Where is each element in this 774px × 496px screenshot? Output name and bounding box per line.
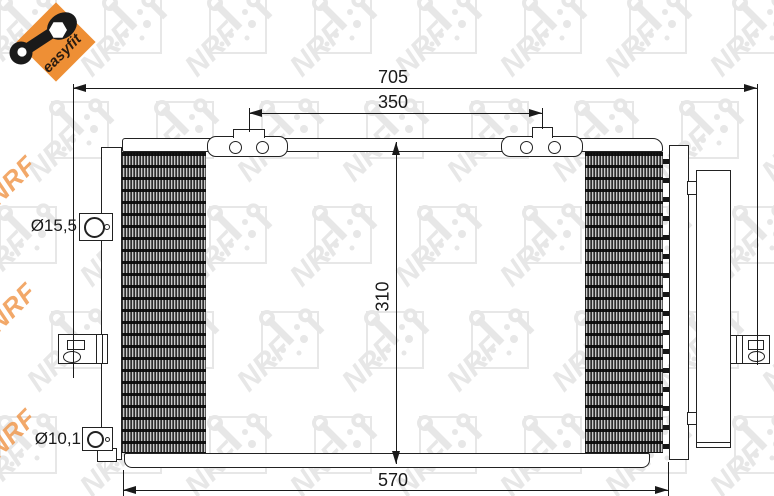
arrowhead-left: [249, 109, 262, 117]
extension-line: [73, 84, 74, 378]
arrowhead-right: [744, 84, 757, 92]
mounting-hole: [548, 141, 561, 154]
dim-line-705: [73, 88, 757, 89]
dim-line-310: [396, 142, 397, 464]
receiver-drier: [696, 170, 731, 448]
mounting-hole: [256, 141, 269, 154]
arrowhead-left: [123, 486, 136, 494]
nrf-watermark-logo: NRF: [237, 297, 347, 402]
dim-value-350: 350: [343, 92, 443, 113]
right-manifold-pipe: [669, 145, 689, 460]
top-fitting-diameter-label: Ø15,5: [17, 216, 77, 236]
bracket-slot: [748, 340, 764, 350]
easyfit-badge: easyfit: [0, 0, 115, 100]
top-left-mounting-tab: [207, 136, 288, 157]
fitting-bolt-hole: [104, 224, 110, 230]
right-fin-core: [585, 152, 663, 453]
extension-line: [123, 470, 124, 496]
arrowhead-right: [655, 486, 668, 494]
nrf-watermark-logo: NRF: [185, 0, 295, 87]
mounting-hole: [520, 141, 533, 154]
nrf-watermark-logo: NRF: [342, 297, 452, 402]
arrowhead-down: [392, 451, 400, 464]
fitting-port-hole: [87, 431, 104, 448]
bracket-divider: [736, 336, 737, 363]
nrf-watermark-logo: NRF: [395, 192, 505, 297]
extension-line: [668, 462, 669, 496]
bottom-fitting-diameter-label: Ø10,1: [21, 429, 81, 449]
dim-value-310: 310: [373, 277, 394, 317]
bottom-header-tank: [124, 453, 650, 468]
top-fitting-block: [79, 213, 113, 241]
right-side-bracket: [730, 335, 770, 364]
left-fin-core: [122, 152, 206, 453]
nrf-watermark-logo: NRF: [710, 0, 774, 87]
nrf-watermark-logo: NRF: [447, 297, 557, 402]
dim-value-705: 705: [343, 67, 443, 88]
dim-value-570: 570: [343, 470, 443, 491]
bracket-oval-hole: [63, 351, 81, 363]
extension-line: [542, 108, 543, 129]
bracket-divider: [96, 335, 97, 363]
dim-line-350: [249, 113, 542, 114]
nrf-watermark-logo: NRF: [500, 0, 610, 87]
fitting-port-hole: [84, 217, 105, 238]
mounting-hole: [229, 141, 242, 154]
bracket-slot: [67, 340, 85, 350]
left-side-bracket: [58, 334, 108, 364]
drier-bottom-cap-line: [697, 442, 730, 443]
fitting-bolt-hole: [105, 437, 110, 442]
top-right-mounting-tab: [501, 136, 583, 157]
technical-drawing-page: NRF NRF: [0, 0, 774, 496]
arrowhead-up: [392, 142, 400, 155]
extension-line: [249, 108, 250, 132]
arrowhead-right: [529, 109, 542, 117]
bracket-divider: [742, 336, 743, 363]
extension-line: [757, 84, 758, 365]
nrf-watermark-logo: NRF: [605, 0, 715, 87]
bracket-divider: [102, 335, 103, 363]
nrf-watermark-logo: NRF: [762, 87, 774, 192]
left-manifold-pipe: [101, 147, 122, 460]
bottom-fitting-block: [82, 427, 113, 451]
svg-text:NRF: NRF: [762, 121, 774, 188]
